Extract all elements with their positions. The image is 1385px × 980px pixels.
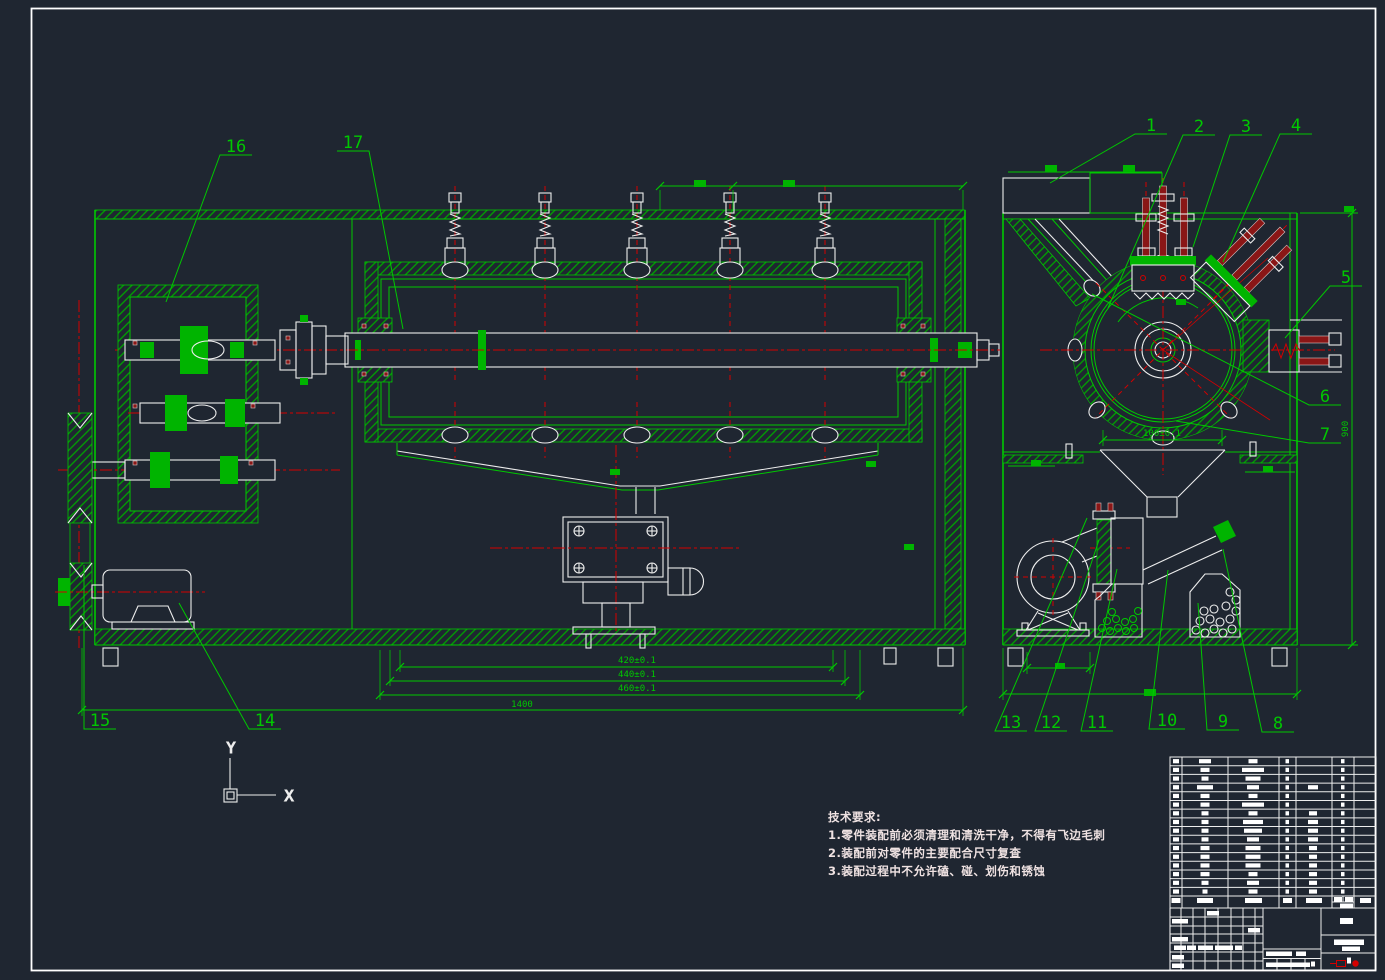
cad-drawing-sheet: 420±0.1 440±0.1 460±0.1 1400 100±0.1 900… <box>0 0 1385 980</box>
callout-15: 15 <box>90 711 110 731</box>
dim-overall-height: 900 <box>1341 421 1351 437</box>
dim-chain-2: 440±0.1 <box>618 670 656 680</box>
callout-14: 14 <box>255 711 275 731</box>
foot <box>1008 648 1023 666</box>
top-clamp-unit <box>1130 178 1196 299</box>
callout-1: 1 <box>1146 116 1156 136</box>
leader-1 <box>1050 134 1167 183</box>
tech-req-item-3: 3.装配过程中不允许磕、碰、划伤和锈蚀 <box>828 864 1045 878</box>
front-view <box>55 186 1000 666</box>
ucs-y-label: Y <box>226 739 235 757</box>
drawing-canvas: 420±0.1 440±0.1 460±0.1 1400 100±0.1 900… <box>0 0 1385 980</box>
tech-req-item-2: 2.装配前对零件的主要配合尺寸复查 <box>828 846 1021 860</box>
front-base-floor <box>95 629 965 645</box>
title-block <box>1170 757 1376 970</box>
technical-requirements: 技术要求: 1.零件装配前必须清理和清洗干净，不得有飞边毛刺 2.装配前对零件的… <box>828 810 1105 878</box>
dim-overall-length: 1400 <box>511 700 533 710</box>
tech-req-title: 技术要求: <box>828 810 881 824</box>
callout-8: 8 <box>1273 714 1283 734</box>
callout-11: 11 <box>1087 713 1107 733</box>
callout-10: 10 <box>1157 711 1177 731</box>
inclined-bolt-unit <box>1187 202 1310 325</box>
callout-17: 17 <box>343 133 363 153</box>
callout-16: 16 <box>226 137 246 157</box>
dim-chain-3: 460±0.1 <box>618 684 656 694</box>
belt-pulleys <box>58 300 92 648</box>
foot <box>1272 648 1287 666</box>
side-view <box>1003 172 1342 666</box>
foot <box>103 648 118 666</box>
callout-7: 7 <box>1320 425 1330 445</box>
ucs-icon: Y X <box>224 739 294 805</box>
ucs-x-label: X <box>284 787 293 805</box>
leader-16 <box>166 155 252 302</box>
foot <box>938 648 953 666</box>
side-base-floor <box>1003 629 1297 645</box>
tech-req-item-1: 1.零件装配前必须清理和清洗干净，不得有飞边毛刺 <box>828 828 1105 842</box>
ball-bin-right <box>1190 574 1240 637</box>
callout-4: 4 <box>1291 116 1301 136</box>
dim-chain-1: 420±0.1 <box>618 656 656 666</box>
mill-unit <box>1093 503 1143 600</box>
callout-2: 2 <box>1194 117 1204 137</box>
callout-12: 12 <box>1041 713 1061 733</box>
spring-tensioner <box>1243 320 1342 372</box>
dim-funnel-opening: 100±0.1 <box>1143 429 1181 439</box>
callout-9: 9 <box>1218 712 1228 732</box>
leader-13 <box>995 518 1087 731</box>
foot <box>884 648 896 664</box>
hopper <box>397 443 878 514</box>
callout-13: 13 <box>1001 713 1021 733</box>
callout-6: 6 <box>1320 387 1330 407</box>
callout-5: 5 <box>1341 268 1351 288</box>
gearbox <box>58 285 340 523</box>
callout-3: 3 <box>1241 117 1251 137</box>
leader-10 <box>1149 570 1185 729</box>
shelf <box>1003 442 1297 472</box>
